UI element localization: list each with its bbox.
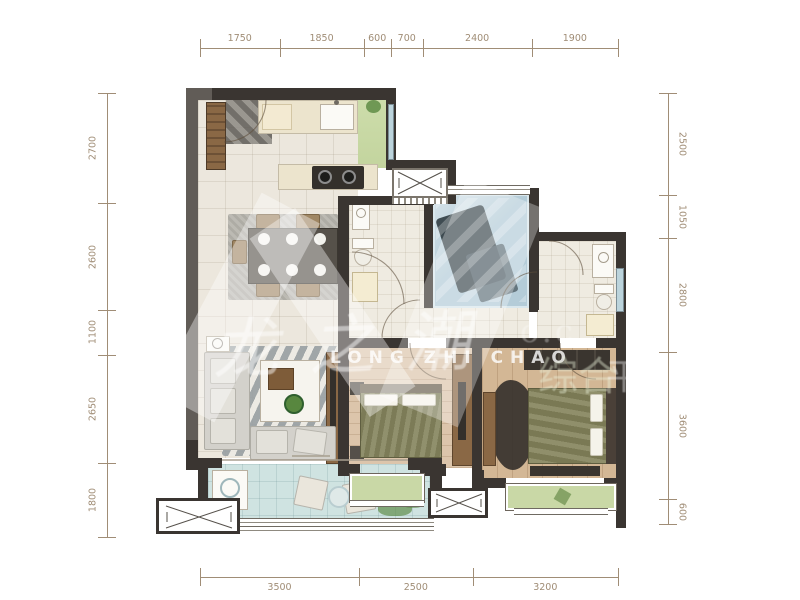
dimension-line-bottom	[200, 577, 618, 578]
dimension-tick	[659, 499, 677, 500]
dim-label-bottom-1: 2500	[404, 582, 428, 593]
dimension-tick	[280, 39, 281, 57]
dim-label-bottom-0: 3500	[267, 582, 291, 593]
dim-label-left-0: 2700	[88, 136, 99, 160]
dimension-tick	[98, 310, 116, 311]
dim-label-top-2: 600	[368, 33, 386, 44]
dimension-tick	[618, 39, 619, 57]
dim-label-top-0: 1750	[228, 33, 252, 44]
dimension-tick	[659, 524, 677, 525]
dimension-tick	[473, 568, 474, 586]
dimension-line-top	[200, 48, 618, 49]
dimension-line-left	[107, 93, 108, 537]
dim-label-left-2: 1100	[88, 320, 99, 344]
dimension-tick	[423, 39, 424, 57]
dimension-tick	[98, 537, 116, 538]
dimension-tick	[618, 568, 619, 586]
watermark-side-text: 平	[606, 348, 642, 400]
dimension-tick	[200, 568, 201, 586]
dimension-tick	[200, 39, 201, 57]
dim-label-left-1: 2600	[88, 245, 99, 269]
dim-label-top-1: 1850	[309, 33, 333, 44]
dimension-tick	[391, 39, 392, 57]
dimension-tick	[98, 203, 116, 204]
dim-label-bottom-2: 3200	[533, 582, 557, 593]
dimension-line-right	[668, 93, 669, 524]
watermark-script-text: 龙之潮	[210, 287, 501, 393]
dim-label-right-3: 3600	[677, 414, 688, 438]
dimension-tick	[98, 93, 116, 94]
sliding-door-line	[222, 456, 408, 460]
watermark-latin-text: LONG ZHI CHAO	[330, 348, 573, 368]
dim-label-left-3: 2650	[88, 397, 99, 421]
dim-label-left-4: 1800	[88, 488, 99, 512]
dimension-tick	[659, 93, 677, 94]
dimension-tick	[659, 238, 677, 239]
watermark-url-text: o.c	[520, 312, 576, 350]
dimension-tick	[98, 463, 116, 464]
dim-label-right-2: 2800	[677, 283, 688, 307]
dim-label-top-5: 1900	[563, 33, 587, 44]
dimension-tick	[364, 39, 365, 57]
dim-label-top-4: 2400	[465, 33, 489, 44]
floorplan-canvas: 龙之潮 LONG ZHI CHAO 综合 平 o.c 1750185060070…	[0, 0, 800, 600]
dimension-tick	[532, 39, 533, 57]
dim-label-top-3: 700	[398, 33, 416, 44]
dim-label-right-4: 600	[677, 503, 688, 521]
dim-label-right-1: 1050	[677, 204, 688, 228]
dimension-tick	[98, 355, 116, 356]
dimension-tick	[659, 352, 677, 353]
dimension-tick	[359, 568, 360, 586]
dim-label-right-0: 2500	[677, 132, 688, 156]
dimension-tick	[659, 195, 677, 196]
